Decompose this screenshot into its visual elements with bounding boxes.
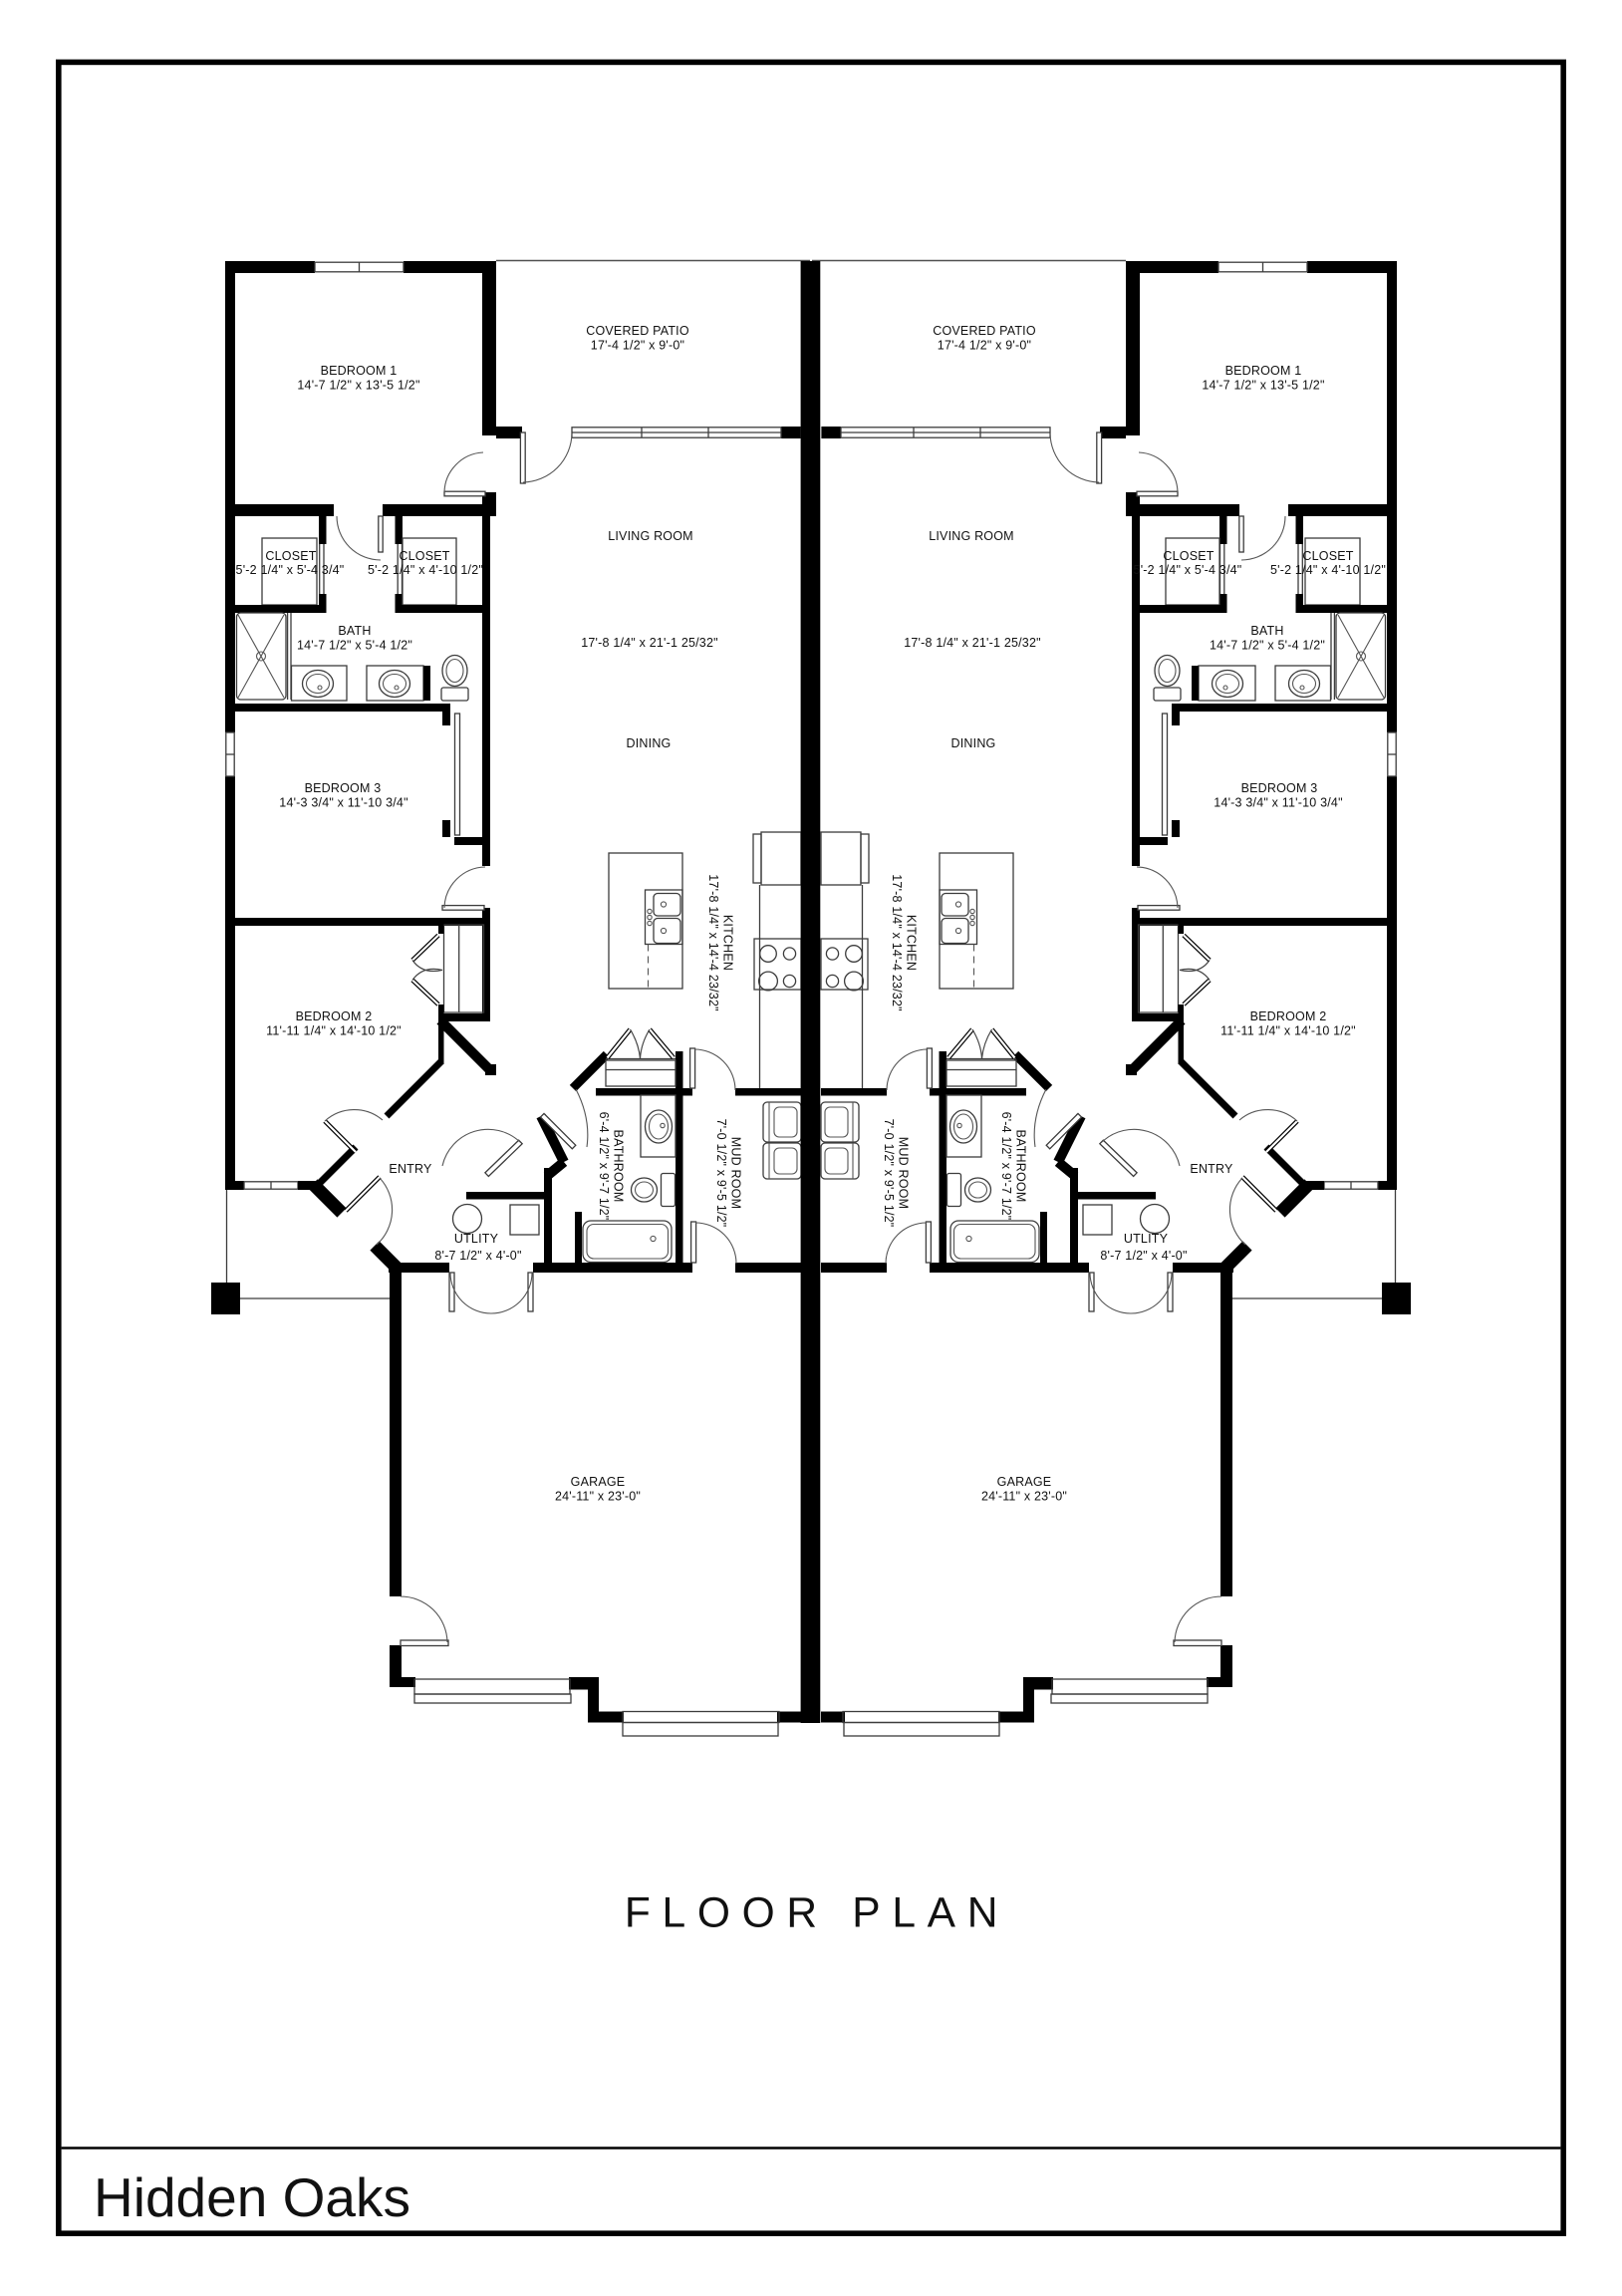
- svg-text:7'-0 1/2" x 9'-5 1/2": 7'-0 1/2" x 9'-5 1/2": [714, 1119, 728, 1228]
- svg-text:BEDROOM 1: BEDROOM 1: [321, 364, 398, 378]
- svg-text:17'-8 1/4" x 21'-1 25/32": 17'-8 1/4" x 21'-1 25/32": [904, 636, 1040, 650]
- svg-text:CLOSET: CLOSET: [265, 549, 316, 563]
- svg-text:11'-11 1/4" x 14'-10 1/2": 11'-11 1/4" x 14'-10 1/2": [266, 1024, 402, 1038]
- svg-text:7'-0 1/2" x 9'-5 1/2": 7'-0 1/2" x 9'-5 1/2": [882, 1119, 896, 1228]
- svg-text:BEDROOM 3: BEDROOM 3: [305, 781, 382, 795]
- svg-text:Hidden Oaks: Hidden Oaks: [94, 2166, 410, 2228]
- svg-text:DINING: DINING: [627, 736, 672, 750]
- svg-text:BEDROOM 2: BEDROOM 2: [296, 1009, 373, 1023]
- svg-text:BEDROOM 1: BEDROOM 1: [1225, 364, 1302, 378]
- svg-text:MUD ROOM: MUD ROOM: [729, 1137, 743, 1209]
- svg-text:COVERED PATIO: COVERED PATIO: [933, 324, 1036, 338]
- svg-text:17'-4 1/2" x 9'-0": 17'-4 1/2" x 9'-0": [938, 339, 1031, 353]
- svg-text:KITCHEN: KITCHEN: [721, 915, 735, 971]
- svg-text:CLOSET: CLOSET: [399, 549, 449, 563]
- svg-text:5'-2 1/4" x 5'-4 3/4": 5'-2 1/4" x 5'-4 3/4": [1134, 563, 1242, 577]
- svg-text:ENTRY: ENTRY: [1190, 1162, 1233, 1176]
- svg-text:LIVING ROOM: LIVING ROOM: [929, 529, 1014, 543]
- svg-text:COVERED PATIO: COVERED PATIO: [586, 324, 689, 338]
- svg-text:17'-8 1/4" x 14'-4 23/32": 17'-8 1/4" x 14'-4 23/32": [890, 874, 904, 1010]
- svg-text:UTLITY: UTLITY: [1124, 1232, 1169, 1246]
- svg-text:ENTRY: ENTRY: [389, 1162, 432, 1176]
- svg-text:BEDROOM 2: BEDROOM 2: [1250, 1009, 1327, 1023]
- svg-text:24'-11" x 23'-0": 24'-11" x 23'-0": [555, 1490, 641, 1504]
- svg-text:KITCHEN: KITCHEN: [905, 915, 919, 971]
- svg-text:BATH: BATH: [338, 624, 371, 638]
- svg-text:11'-11 1/4" x 14'-10 1/2": 11'-11 1/4" x 14'-10 1/2": [1220, 1024, 1356, 1038]
- svg-text:14'-7 1/2" x 5'-4 1/2": 14'-7 1/2" x 5'-4 1/2": [1210, 639, 1325, 653]
- svg-text:6'-4 1/2" x 9'-7 1/2": 6'-4 1/2" x 9'-7 1/2": [999, 1112, 1013, 1221]
- svg-text:14'-3 3/4" x 11'-10 3/4": 14'-3 3/4" x 11'-10 3/4": [1214, 796, 1342, 810]
- svg-text:6'-4 1/2" x 9'-7 1/2": 6'-4 1/2" x 9'-7 1/2": [597, 1112, 611, 1221]
- svg-text:8'-7 1/2" x 4'-0": 8'-7 1/2" x 4'-0": [434, 1249, 521, 1263]
- svg-text:8'-7 1/2" x 4'-0": 8'-7 1/2" x 4'-0": [1100, 1249, 1187, 1263]
- svg-text:GARAGE: GARAGE: [997, 1475, 1052, 1489]
- svg-text:BATH: BATH: [1250, 624, 1283, 638]
- svg-text:MUD ROOM: MUD ROOM: [897, 1137, 911, 1209]
- svg-text:BEDROOM 3: BEDROOM 3: [1241, 781, 1318, 795]
- svg-text:CLOSET: CLOSET: [1302, 549, 1353, 563]
- svg-text:5'-2 1/4" x 4'-10 1/2": 5'-2 1/4" x 4'-10 1/2": [1270, 563, 1386, 577]
- svg-text:14'-7 1/2" x 13'-5 1/2": 14'-7 1/2" x 13'-5 1/2": [1202, 379, 1324, 393]
- svg-text:14'-7 1/2" x 5'-4 1/2": 14'-7 1/2" x 5'-4 1/2": [297, 639, 412, 653]
- svg-text:BATHROOM: BATHROOM: [1014, 1130, 1028, 1203]
- svg-text:FLOOR PLAN: FLOOR PLAN: [625, 1890, 1009, 1937]
- svg-text:17'-4 1/2" x 9'-0": 17'-4 1/2" x 9'-0": [591, 339, 684, 353]
- svg-text:17'-8 1/4" x 21'-1 25/32": 17'-8 1/4" x 21'-1 25/32": [581, 636, 717, 650]
- svg-text:BATHROOM: BATHROOM: [612, 1130, 626, 1203]
- svg-text:GARAGE: GARAGE: [571, 1475, 626, 1489]
- svg-text:14'-7 1/2" x 13'-5 1/2": 14'-7 1/2" x 13'-5 1/2": [297, 379, 419, 393]
- svg-text:CLOSET: CLOSET: [1163, 549, 1214, 563]
- svg-text:5'-2 1/4" x 5'-4 3/4": 5'-2 1/4" x 5'-4 3/4": [236, 563, 345, 577]
- svg-text:17'-8 1/4" x 14'-4 23/32": 17'-8 1/4" x 14'-4 23/32": [706, 874, 720, 1010]
- svg-text:14'-3 3/4" x 11'-10 3/4": 14'-3 3/4" x 11'-10 3/4": [279, 796, 407, 810]
- svg-text:24'-11" x 23'-0": 24'-11" x 23'-0": [981, 1490, 1067, 1504]
- svg-text:LIVING ROOM: LIVING ROOM: [608, 529, 693, 543]
- svg-text:UTLITY: UTLITY: [454, 1232, 499, 1246]
- svg-text:DINING: DINING: [951, 736, 996, 750]
- svg-text:5'-2 1/4" x 4'-10 1/2": 5'-2 1/4" x 4'-10 1/2": [368, 563, 483, 577]
